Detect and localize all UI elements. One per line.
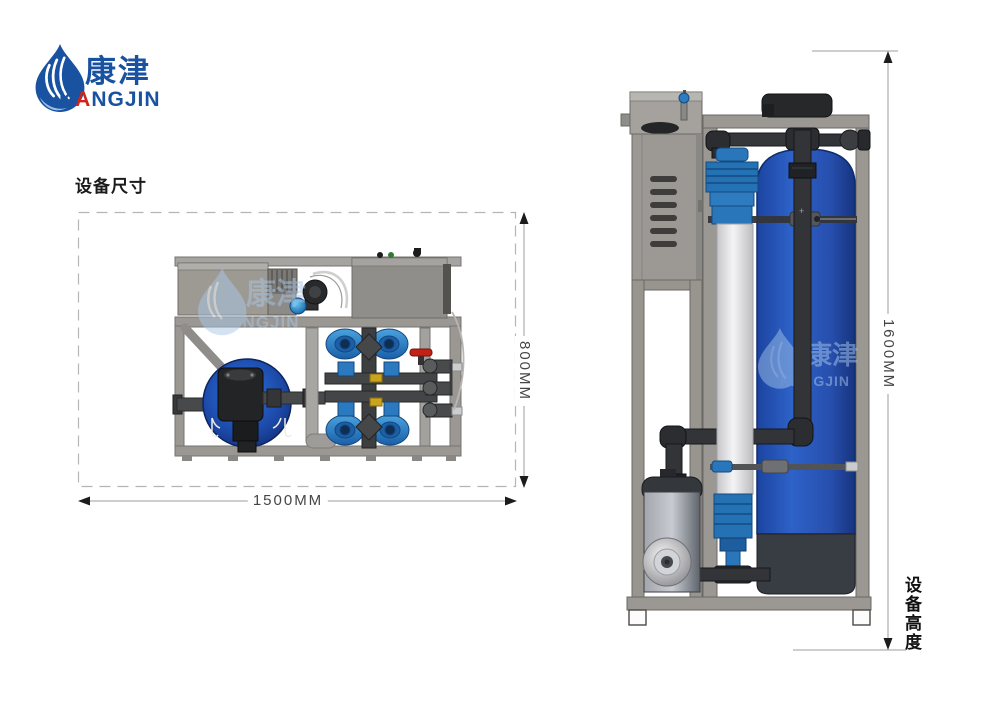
tank-base (757, 534, 855, 594)
page: 康津 KANGJIN 设备尺寸 (0, 0, 1000, 709)
width-dimension-label: 1500MM (248, 492, 328, 510)
svg-text:康津: 康津 (246, 277, 306, 311)
height-caption: 设备高度 (899, 576, 924, 652)
side-view-top-motor (762, 94, 832, 117)
svg-text:+: + (799, 206, 804, 216)
equipment-side-view-illustration: 康津 KANGJIN + (610, 88, 880, 633)
foot-right (853, 610, 870, 625)
depth-dimension-label: 800MM (515, 336, 533, 406)
svg-text:康津: 康津 (806, 340, 858, 370)
svg-text:KANGJIN: KANGJIN (780, 373, 850, 389)
top-view-feet (182, 456, 456, 461)
foot-left (629, 610, 646, 625)
height-dimension-label: 1600MM (879, 314, 897, 394)
svg-text:KANGJIN: KANGJIN (216, 313, 300, 332)
top-view-control-box-right (352, 248, 451, 318)
equipment-top-view-illustration: 康津 KANGJIN (78, 212, 518, 488)
side-view-pump (642, 469, 702, 592)
side-view-base-frame (627, 597, 871, 625)
